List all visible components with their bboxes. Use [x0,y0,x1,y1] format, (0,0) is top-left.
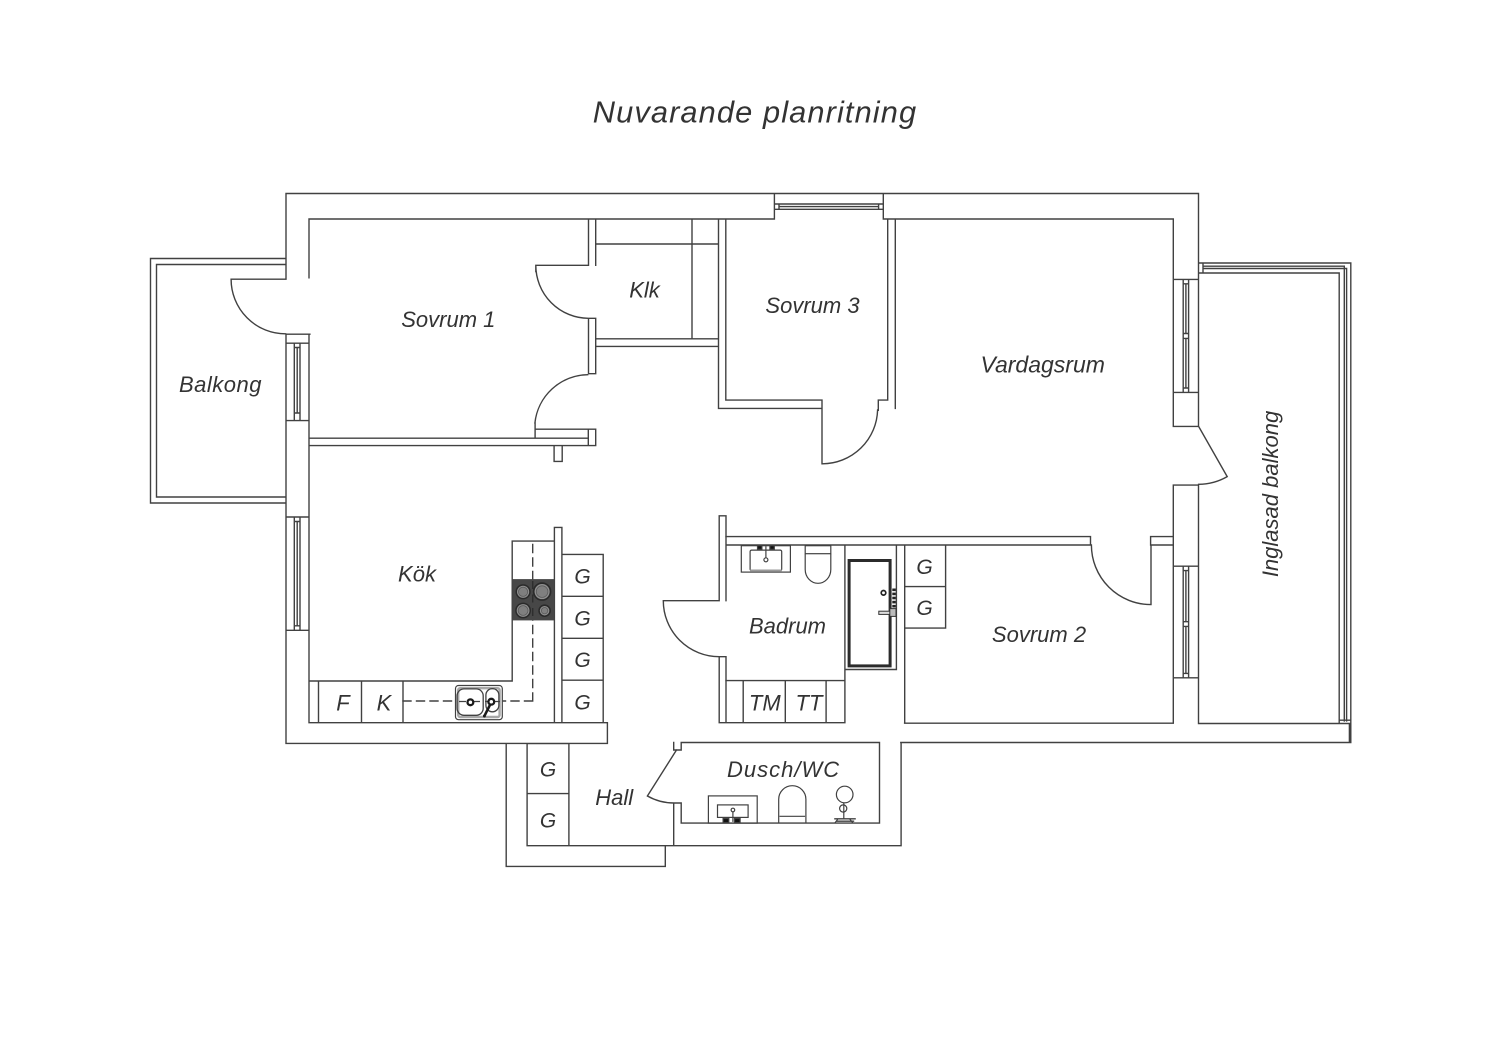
svg-text:Sovrum 3: Sovrum 3 [765,293,860,318]
svg-text:Sovrum 2: Sovrum 2 [992,622,1086,647]
svg-text:TT: TT [796,690,824,715]
svg-text:G: G [574,607,590,630]
svg-text:TM: TM [749,690,781,715]
svg-text:Dusch/WC: Dusch/WC [727,757,840,782]
svg-text:Inglasad balkong: Inglasad balkong [1258,410,1283,577]
svg-text:G: G [574,649,590,672]
svg-text:Vardagsrum: Vardagsrum [980,352,1104,378]
svg-text:Balkong: Balkong [179,372,262,397]
svg-text:Badrum: Badrum [749,614,826,639]
svg-text:G: G [574,692,590,715]
svg-text:Kök: Kök [398,562,437,587]
svg-text:F: F [336,691,351,716]
svg-text:Sovrum 1: Sovrum 1 [401,307,495,332]
svg-text:G: G [540,759,556,782]
svg-text:G: G [916,556,932,579]
svg-text:G: G [540,809,556,832]
svg-text:G: G [574,565,590,588]
svg-text:G: G [916,597,932,620]
svg-text:Hall: Hall [595,785,634,810]
svg-text:Nuvarande planritning: Nuvarande planritning [593,94,917,129]
svg-text:Klk: Klk [629,278,661,303]
svg-text:K: K [377,691,393,716]
